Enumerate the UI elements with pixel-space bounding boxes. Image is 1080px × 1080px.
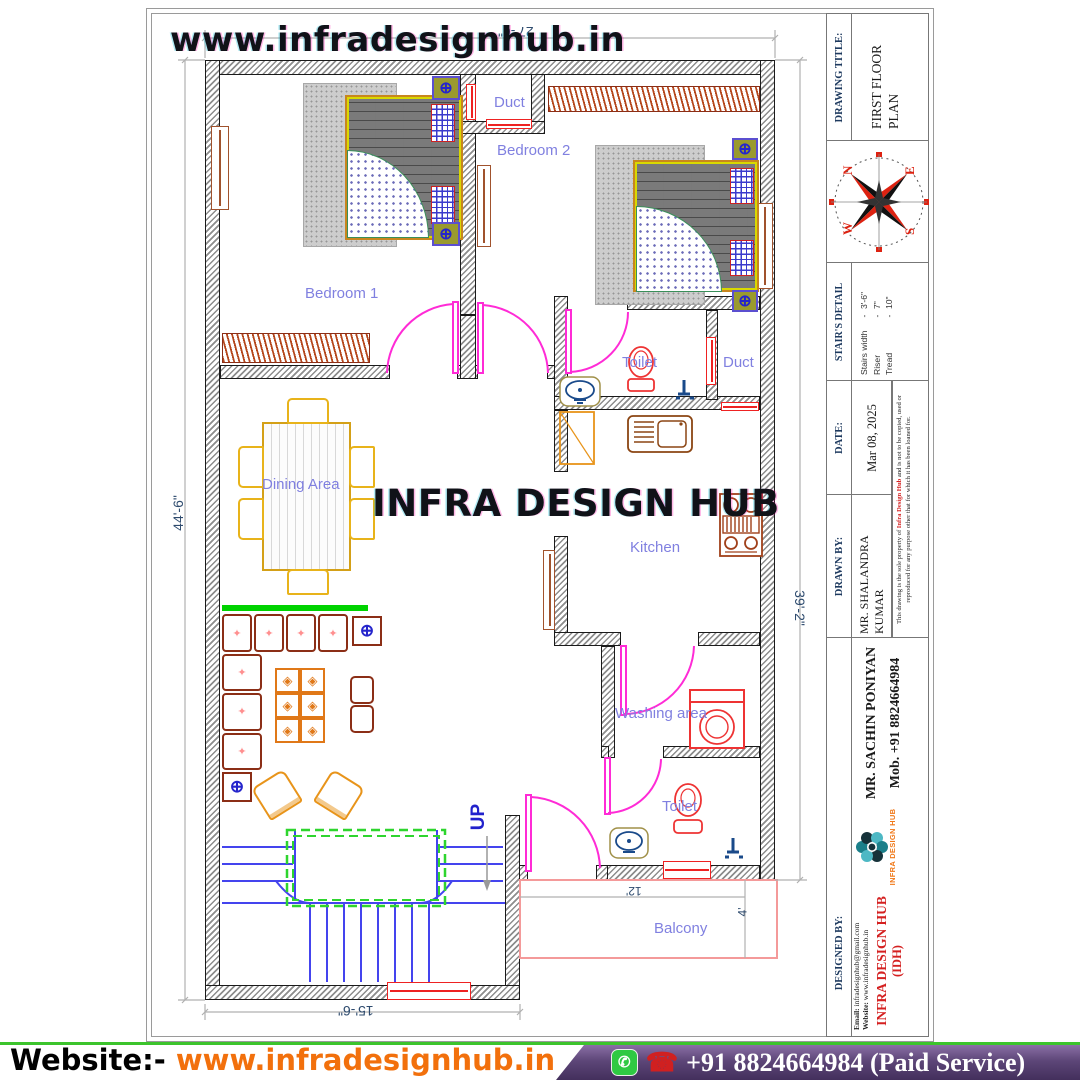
drawn-by-line1: MR. SHALANDRA: [857, 495, 872, 634]
window-dining-kitchen: [543, 550, 555, 630]
center-table: ◈: [275, 668, 300, 693]
compass-w: W: [840, 222, 855, 235]
room-label-toilet-mid: Toilet: [622, 354, 657, 371]
window-duct-left: [466, 84, 476, 120]
wall-kitchen-bottom-left: [554, 632, 621, 646]
company-website: www.infradesignhub.in: [861, 930, 870, 1000]
tv-unit: [222, 605, 368, 611]
window-duct-bottom: [486, 119, 532, 129]
pillow-bedroom2-b: [730, 240, 754, 276]
drawing-title-label: DRAWING TITLE:: [827, 14, 852, 141]
drawing-title-line1: FIRST FLOOR: [868, 14, 885, 129]
wall-kitchen-left-lower: [554, 536, 568, 646]
compass-n: N: [840, 165, 855, 175]
watermark-top: www.infradesignhub.in: [170, 20, 625, 60]
watermark-center: INFRA DESIGN HUB: [372, 482, 780, 525]
tb-row-drawing-title: DRAWING TITLE: FIRST FLOOR PLAN: [827, 14, 928, 141]
dining-table: [262, 422, 351, 571]
dining-chair-bottom: [287, 569, 329, 595]
dim-left: 44'-6": [170, 495, 186, 531]
ceiling-fan-living-a: ⊕: [352, 616, 382, 646]
compass-e: E: [902, 166, 917, 175]
drawn-by-line2: KUMAR: [872, 495, 887, 634]
company-name: INFRA DESIGN HUB: [874, 886, 890, 1036]
footer-website-url: www.infradesignhub.in: [176, 1043, 555, 1077]
designer-mobile: Mob. +91 8824664984: [884, 638, 908, 808]
nightstand-bedroom1-a: ⊕: [432, 76, 460, 100]
idh-logo-icon: [854, 829, 888, 865]
room-label-dining: Dining Area: [262, 476, 340, 493]
title-block: DRAWING TITLE: FIRST FLOOR PLAN: [826, 13, 929, 1037]
tb-drawing-title-labelcell: DRAWING TITLE:: [827, 14, 852, 140]
logo-text: INFRA DESIGN HUB: [888, 808, 897, 886]
dim-balcony-depth: 4': [735, 908, 749, 917]
whatsapp-icon: ✆: [611, 1049, 638, 1076]
room-label-kitchen: Kitchen: [630, 539, 680, 556]
wall-stair-bottom: [205, 985, 520, 1000]
ceiling-fan-living-b: ⊕: [222, 772, 252, 802]
stair-row: Tread-10": [883, 267, 896, 375]
window-duct2-bottom: [721, 402, 759, 411]
sofa-seat: ✦: [222, 733, 262, 770]
center-table: ◈: [275, 693, 300, 718]
pillow-bedroom2-a: [730, 168, 754, 204]
tb-row-designed-by: DESIGNED BY: MR. SACHIN PONIYAN Mob. +91…: [827, 638, 928, 1036]
window-stairs-bottom: [387, 982, 471, 1000]
sofa-seat: ✦: [254, 614, 284, 652]
drawing-sheet: ⊕ ⊕ ⊕ ⊕ ✦✦✦✦ ✦✦✦ ⊕ ⊕ ◈ ◈ ◈ ◈ ◈ ◈: [0, 0, 1080, 1080]
pillow-bedroom1-b: [431, 186, 455, 224]
nightstand-bedroom1-b: ⊕: [432, 222, 460, 246]
wall-kitchen-left-upper: [554, 410, 568, 472]
wall-right: [760, 60, 775, 880]
nightstand-bedroom2-a: ⊕: [732, 138, 758, 160]
wall-toilet-left: [554, 296, 568, 410]
mirror-bedroom2-left: [477, 165, 491, 247]
date-label: DATE:: [827, 381, 852, 495]
date-value: Mar 08, 2025: [852, 381, 892, 495]
drawing-title-line2: PLAN: [885, 14, 902, 129]
wardrobe-bedroom1: [222, 333, 370, 363]
room-label-bedroom1: Bedroom 1: [305, 285, 378, 302]
room-label-balcony: Balcony: [654, 920, 707, 937]
designed-by-label: DESIGNED BY:: [827, 873, 852, 1033]
drawn-by-label: DRAWN BY:: [827, 495, 852, 638]
window-bedroom1-left: [211, 126, 229, 210]
room-label-bedroom2: Bedroom 2: [497, 142, 570, 159]
dim-balcony-width: 12': [626, 884, 642, 898]
sofa-seat: ✦: [222, 614, 252, 652]
nightstand-bedroom2-b: ⊕: [732, 290, 758, 312]
up-label: UP: [468, 804, 490, 830]
center-table: ◈: [275, 718, 300, 743]
window-duct2-left: [706, 337, 716, 385]
compass-s: S: [902, 228, 917, 235]
room-label-duct-top: Duct: [494, 94, 525, 111]
tb-row-stairs: STAIR'S DETAIL Stairs width-3'-6" Riser-…: [827, 263, 928, 381]
sofa-seat: ✦: [318, 614, 348, 652]
stairs-detail-label: STAIR'S DETAIL: [827, 263, 852, 381]
wall-washing-left: [601, 646, 615, 758]
compass-rose-icon: N E S W: [827, 141, 930, 263]
telephone-icon: ☎: [646, 1050, 678, 1075]
footer-contact: ✆ ☎ +91 8824664984 (Paid Service): [556, 1045, 1080, 1080]
company-abbr: (IDH): [890, 886, 905, 1036]
disclaimer-text: This drawing is the sole property of Inf…: [893, 381, 931, 638]
room-label-toilet-bottom: Toilet: [662, 798, 697, 815]
room-label-duct-mid: Duct: [723, 354, 754, 371]
stair-row: Riser-7": [871, 267, 884, 375]
center-table: ◈: [300, 718, 325, 743]
disclaimer-brand: Infra Design Hub: [896, 479, 903, 528]
tb-row-compass: N E S W: [827, 141, 928, 263]
pillow-bedroom1-a: [431, 104, 455, 142]
designer-name: MR. SACHIN PONIYAN: [860, 638, 884, 808]
stool-b: [350, 705, 374, 733]
stair-row: Stairs width-3'-6": [858, 267, 871, 375]
tb-disclaimer-cell: This drawing is the sole property of Inf…: [892, 381, 930, 638]
dim-bottom: 15'-6": [338, 1003, 374, 1019]
sofa-left-column: ✦✦✦: [222, 654, 262, 770]
dining-chair-left2: [238, 498, 264, 540]
window-toilet2-bottom: [663, 861, 711, 879]
wall-corridor-left: [460, 315, 476, 379]
wardrobe-bedroom2: [548, 86, 760, 112]
footer-website: Website:- www.infradesignhub.in: [10, 1043, 555, 1077]
center-table: ◈: [300, 693, 325, 718]
wall-stair-right: [505, 815, 520, 1000]
company-email: infradesignhub@gmail.com: [852, 923, 861, 1007]
wall-entry-stub-right: [596, 865, 608, 880]
dim-right: 39'-2": [792, 590, 808, 626]
center-table: ◈: [300, 668, 325, 693]
sofa-seat: ✦: [222, 654, 262, 691]
sofa-top-row: ✦✦✦✦: [222, 614, 348, 652]
wall-top: [205, 60, 775, 75]
wall-kitchen-bottom-right: [698, 632, 760, 646]
stool-a: [350, 676, 374, 704]
wall-washing-bottom: [663, 746, 760, 758]
window-bedroom2-right: [757, 203, 773, 289]
footer-bar: Website:- www.infradesignhub.in ✆ ☎ +91 …: [0, 1045, 1080, 1080]
sofa-seat: ✦: [286, 614, 316, 652]
sofa-seat: ✦: [222, 693, 262, 730]
wall-washing-bottom-stub: [601, 746, 609, 758]
room-label-washing: Washing area: [615, 705, 707, 722]
dining-chair-top: [287, 398, 329, 424]
footer-website-label: Website:-: [10, 1043, 166, 1077]
dining-chair-left1: [238, 446, 264, 488]
wall-bedroom1-bottom: [220, 365, 390, 379]
footer-phone: +91 8824664984 (Paid Service): [686, 1048, 1025, 1078]
